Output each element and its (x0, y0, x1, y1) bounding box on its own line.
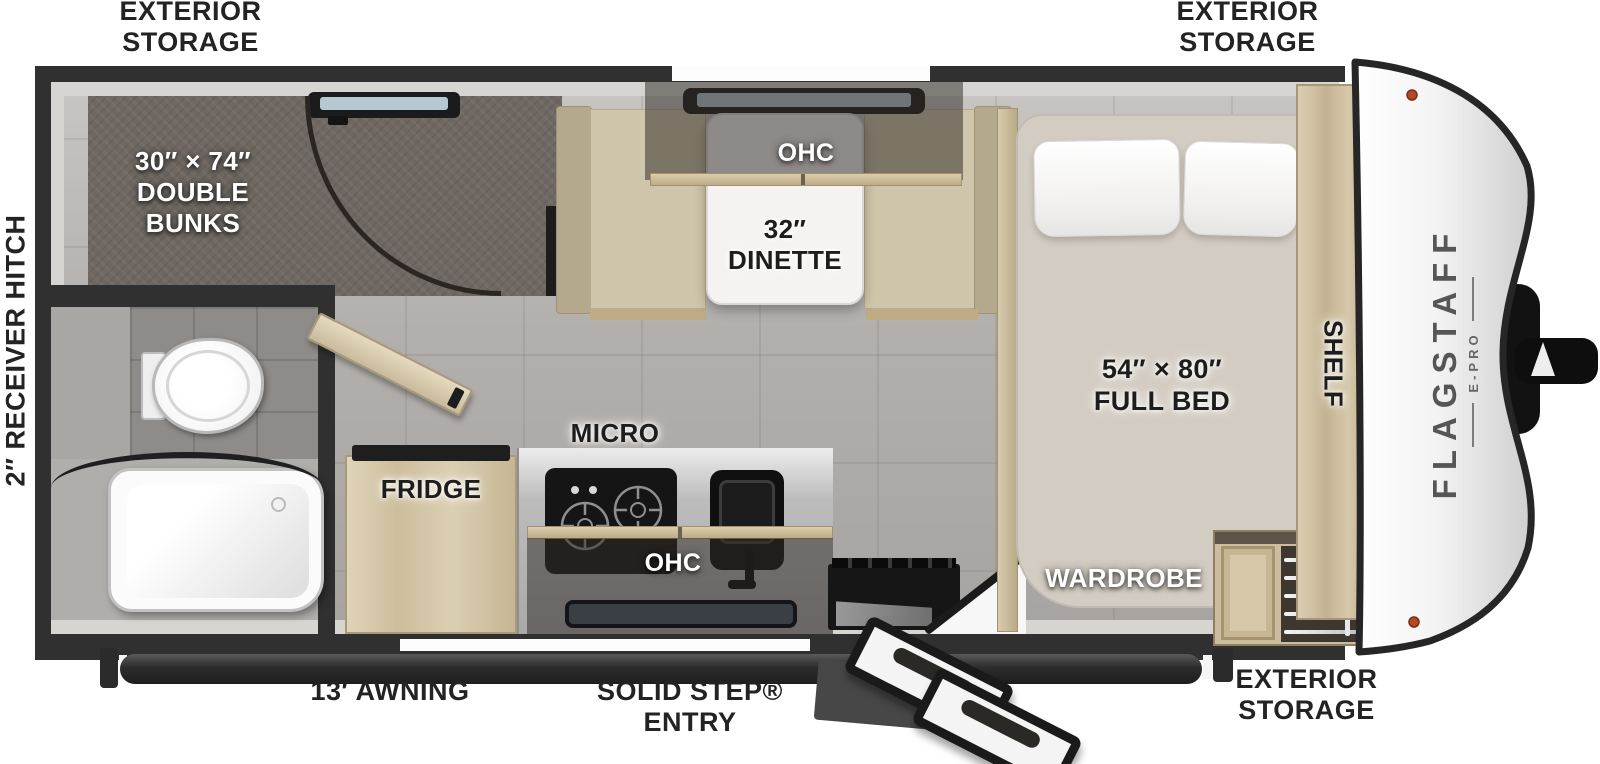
dinette-left-trim (590, 309, 706, 320)
brand-line-right (1472, 277, 1474, 321)
pillow-right (1183, 141, 1299, 238)
bed-label: 54″ × 80″ FULL BED (1042, 353, 1282, 417)
bathroom-door-handle (447, 387, 465, 409)
dinette-left-backrest (556, 106, 592, 314)
exterior-storage-label-bottom-right: EXTERIOR STORAGE (1204, 664, 1409, 726)
bed-label-line2: FULL BED (1042, 385, 1282, 417)
bunks-label-line3: BUNKS (93, 208, 293, 239)
marker-light-bottom (1409, 617, 1419, 627)
wardrobe-label: WARDROBE (1004, 563, 1244, 594)
bed-label-line1: 54″ × 80″ (1042, 353, 1282, 385)
exterior-storage-top-right-line2: STORAGE (1145, 27, 1350, 58)
bunks-label-line2: DOUBLE (93, 177, 293, 208)
exterior-storage-top-left-line2: STORAGE (88, 27, 293, 58)
micro-label: MICRO (535, 418, 695, 449)
exterior-storage-top-left-line1: EXTERIOR (88, 0, 293, 27)
bottom-window-marker (400, 639, 810, 651)
brand-sub-row: E-PRO (1466, 277, 1481, 446)
entry-label-line1: SOLID STEP® (570, 676, 810, 707)
bunks-label: 30″ × 74″ DOUBLE BUNKS (93, 146, 293, 239)
brand-logo: FLAGSTAFF E-PRO (1416, 152, 1490, 572)
dinette-label-line1: 32″ (706, 214, 864, 245)
awning-label: 13′ AWNING (270, 676, 510, 707)
bunks-label-line1: 30″ × 74″ (93, 146, 293, 177)
entry-step-lower-slot (959, 697, 1043, 750)
brand-model: E-PRO (1466, 331, 1481, 392)
bathtub (108, 468, 324, 612)
exterior-storage-bottom-right-line2: STORAGE (1204, 695, 1409, 726)
hitch-arm (1515, 338, 1598, 384)
bathroom-partition-wall (35, 285, 335, 307)
dinette-right-trim (866, 309, 978, 320)
exterior-storage-bottom-right-line1: EXTERIOR (1204, 664, 1409, 695)
fridge-label: FRIDGE (345, 474, 517, 505)
bed-divider-wall (997, 108, 1018, 632)
kitchen-window (565, 600, 797, 628)
fridge-top-vent (352, 445, 510, 461)
awning-bracket-left (100, 648, 118, 688)
receiver-hitch-label: 2″ RECEIVER HITCH (1, 217, 32, 487)
dinette-label: 32″ DINETTE (706, 214, 864, 276)
exterior-storage-top-right-line1: EXTERIOR (1145, 0, 1350, 27)
pillow-left (1033, 139, 1181, 238)
marker-light-top (1407, 90, 1417, 100)
furnace-vents (832, 558, 956, 568)
exterior-storage-label-top-right: EXTERIOR STORAGE (1145, 0, 1350, 58)
kitchen-ohc-label: OHC (623, 549, 723, 578)
kitchen-ohc-edge-gap (678, 527, 682, 538)
dinette-ohc-edge-gap (801, 174, 805, 185)
brand-name: FLAGSTAFF (1426, 225, 1464, 500)
rear-wall (35, 66, 51, 660)
entry-label-line2: ENTRY (570, 707, 810, 738)
exterior-storage-label-top-left: EXTERIOR STORAGE (88, 0, 293, 58)
dinette-ohc-label: OHC (756, 139, 856, 168)
bathtub-drain (271, 497, 286, 512)
floorplan-canvas: 30″ × 74″ DOUBLE BUNKS OHC 32″ DINETTE F… (0, 0, 1600, 764)
dinette-ohc-edge (650, 173, 962, 186)
dinette-label-line2: DINETTE (706, 245, 864, 276)
entry-label: SOLID STEP® ENTRY (570, 676, 810, 738)
toilet-seat-ring (166, 350, 250, 422)
top-window-marker (672, 66, 930, 81)
brand-line-left (1472, 403, 1474, 447)
